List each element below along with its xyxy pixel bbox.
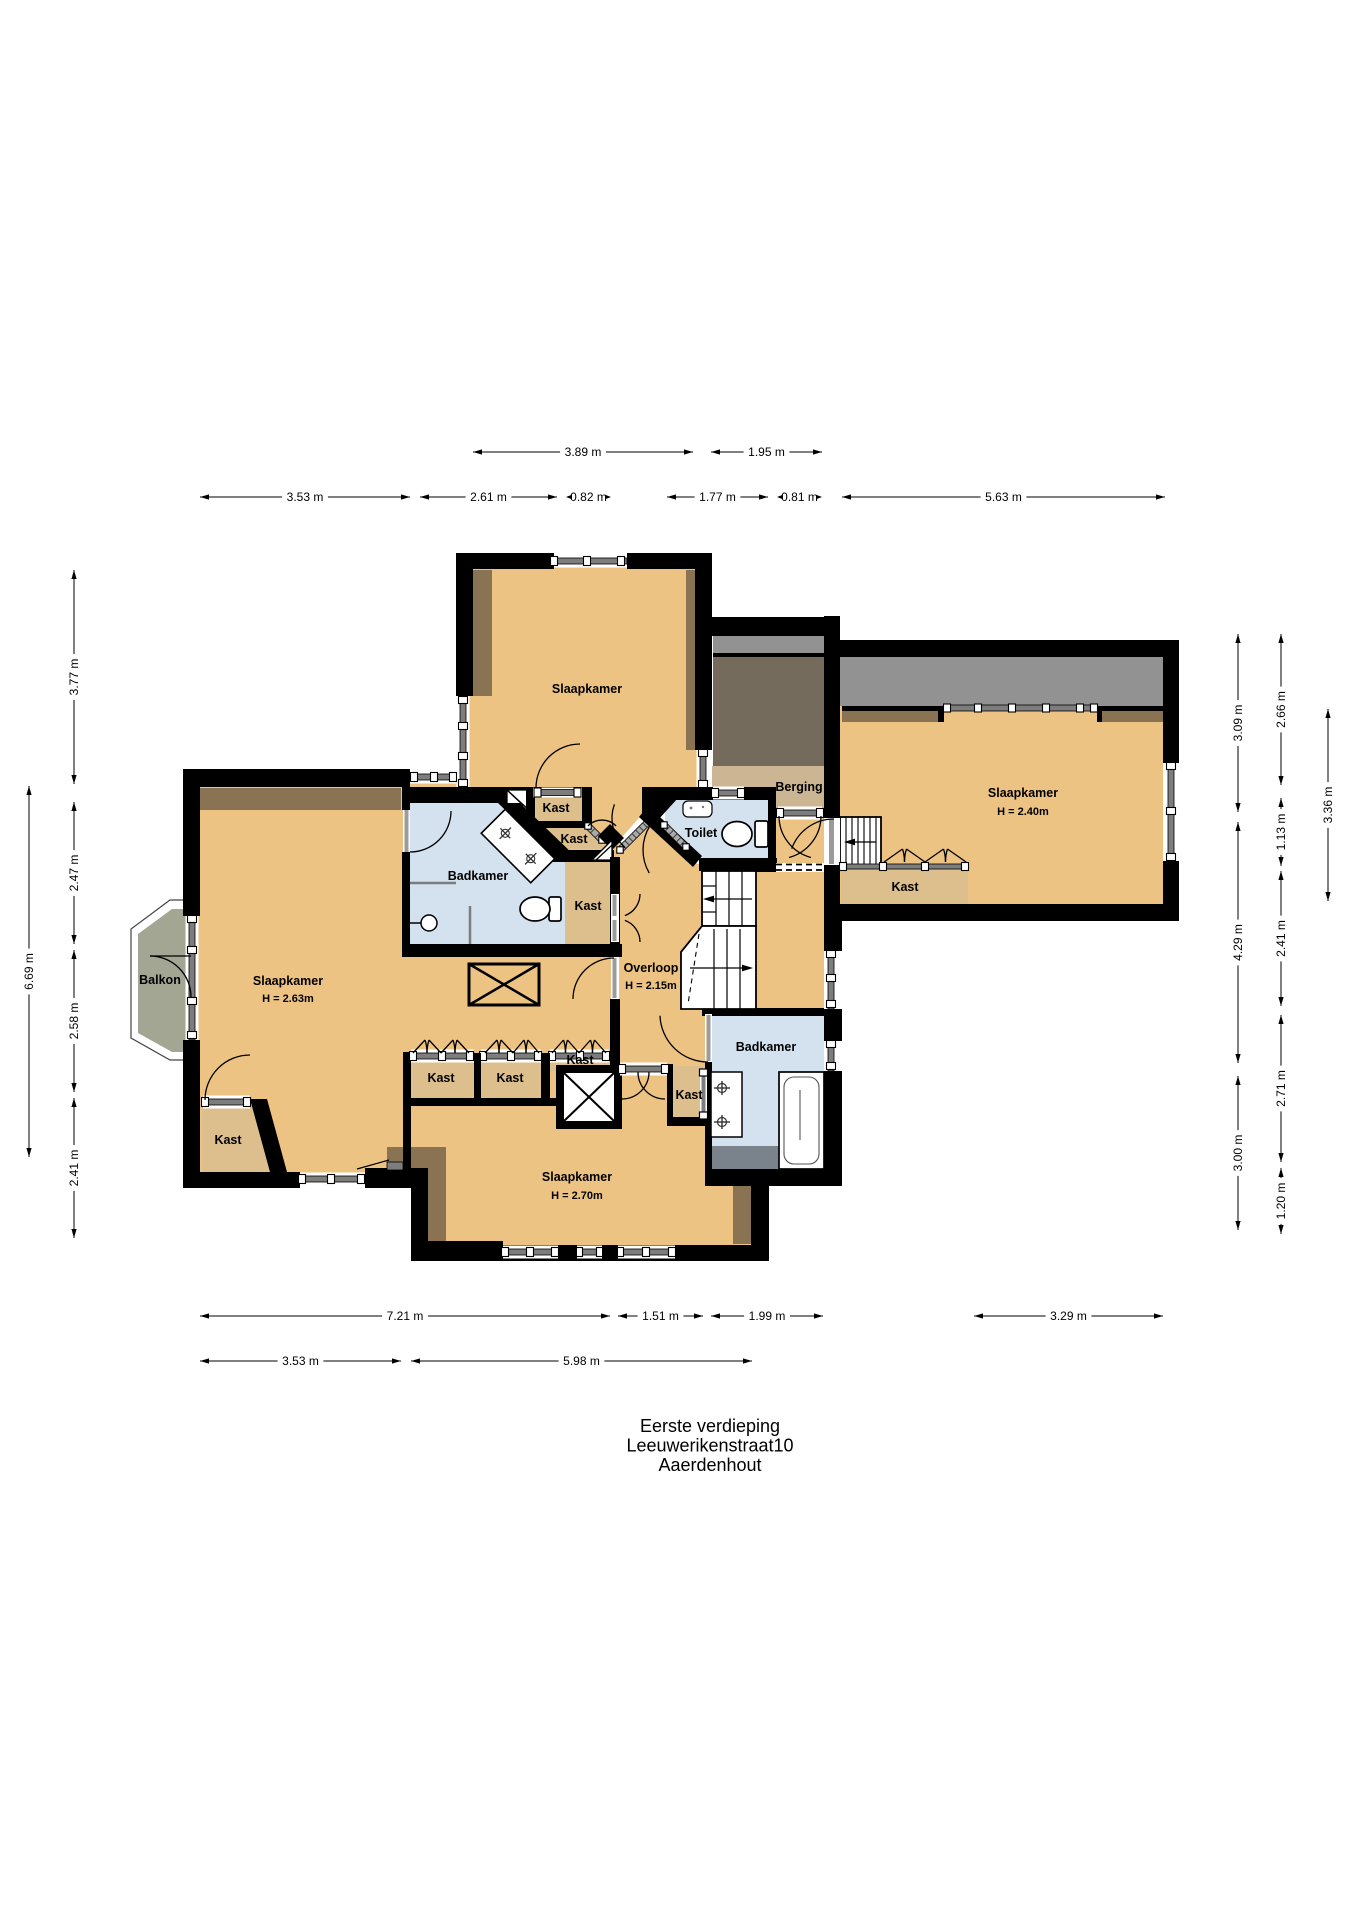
svg-text:Kast: Kast	[542, 801, 570, 815]
svg-text:5.63 m: 5.63 m	[985, 490, 1022, 504]
svg-text:Balkon: Balkon	[139, 973, 181, 987]
svg-text:Slaapkamer: Slaapkamer	[988, 786, 1058, 800]
svg-text:Badkamer: Badkamer	[736, 1040, 797, 1054]
svg-text:2.71 m: 2.71 m	[1274, 1070, 1288, 1107]
svg-text:Slaapkamer: Slaapkamer	[552, 682, 622, 696]
svg-text:3.00 m: 3.00 m	[1231, 1135, 1245, 1172]
svg-text:0.82 m: 0.82 m	[570, 490, 607, 504]
svg-text:2.58 m: 2.58 m	[67, 1003, 81, 1040]
svg-text:Toilet: Toilet	[685, 826, 718, 840]
svg-text:7.21 m: 7.21 m	[387, 1309, 424, 1323]
svg-text:Overloop: Overloop	[624, 961, 679, 975]
svg-text:2.41 m: 2.41 m	[67, 1150, 81, 1187]
svg-text:1.13 m: 1.13 m	[1274, 814, 1288, 851]
svg-text:Kast: Kast	[496, 1071, 524, 1085]
svg-text:1.77 m: 1.77 m	[699, 490, 736, 504]
svg-text:3.36 m: 3.36 m	[1321, 787, 1335, 824]
svg-text:H = 2.15m: H = 2.15m	[625, 980, 677, 992]
svg-text:Kast: Kast	[214, 1133, 242, 1147]
svg-text:Slaapkamer: Slaapkamer	[253, 974, 323, 988]
svg-text:2.47 m: 2.47 m	[67, 855, 81, 892]
svg-text:3.53 m: 3.53 m	[287, 490, 324, 504]
svg-text:H = 2.70m: H = 2.70m	[551, 1190, 603, 1202]
svg-text:2.41 m: 2.41 m	[1274, 920, 1288, 957]
svg-text:3.89 m: 3.89 m	[565, 445, 602, 459]
svg-text:Kast: Kast	[675, 1088, 703, 1102]
svg-text:3.77 m: 3.77 m	[67, 659, 81, 696]
svg-text:H = 2.40m: H = 2.40m	[997, 806, 1049, 818]
svg-text:Berging: Berging	[775, 780, 822, 794]
svg-text:Aaerdenhout: Aaerdenhout	[658, 1455, 761, 1475]
svg-text:Leeuwerikenstraat10: Leeuwerikenstraat10	[626, 1436, 793, 1456]
svg-text:Kast: Kast	[566, 1053, 594, 1067]
svg-text:Kast: Kast	[560, 832, 588, 846]
svg-text:H = 2.63m: H = 2.63m	[262, 993, 314, 1005]
svg-text:Badkamer: Badkamer	[448, 869, 509, 883]
svg-text:5.98 m: 5.98 m	[563, 1354, 600, 1368]
svg-text:3.29 m: 3.29 m	[1050, 1309, 1087, 1323]
svg-text:Kast: Kast	[427, 1071, 455, 1085]
svg-text:Kast: Kast	[891, 880, 919, 894]
svg-text:Kast: Kast	[574, 899, 602, 913]
svg-text:1.95 m: 1.95 m	[748, 445, 785, 459]
svg-text:Eerste verdieping: Eerste verdieping	[640, 1416, 780, 1436]
svg-text:1.51 m: 1.51 m	[642, 1309, 679, 1323]
svg-text:Slaapkamer: Slaapkamer	[542, 1170, 612, 1184]
svg-text:1.20 m: 1.20 m	[1274, 1183, 1288, 1220]
svg-text:3.09 m: 3.09 m	[1231, 705, 1245, 742]
svg-text:0.81 m: 0.81 m	[781, 490, 818, 504]
svg-text:6.69 m: 6.69 m	[22, 953, 36, 990]
svg-text:4.29 m: 4.29 m	[1231, 924, 1245, 961]
svg-text:2.66 m: 2.66 m	[1274, 691, 1288, 728]
svg-text:1.99 m: 1.99 m	[749, 1309, 786, 1323]
svg-text:2.61 m: 2.61 m	[470, 490, 507, 504]
svg-text:3.53 m: 3.53 m	[282, 1354, 319, 1368]
